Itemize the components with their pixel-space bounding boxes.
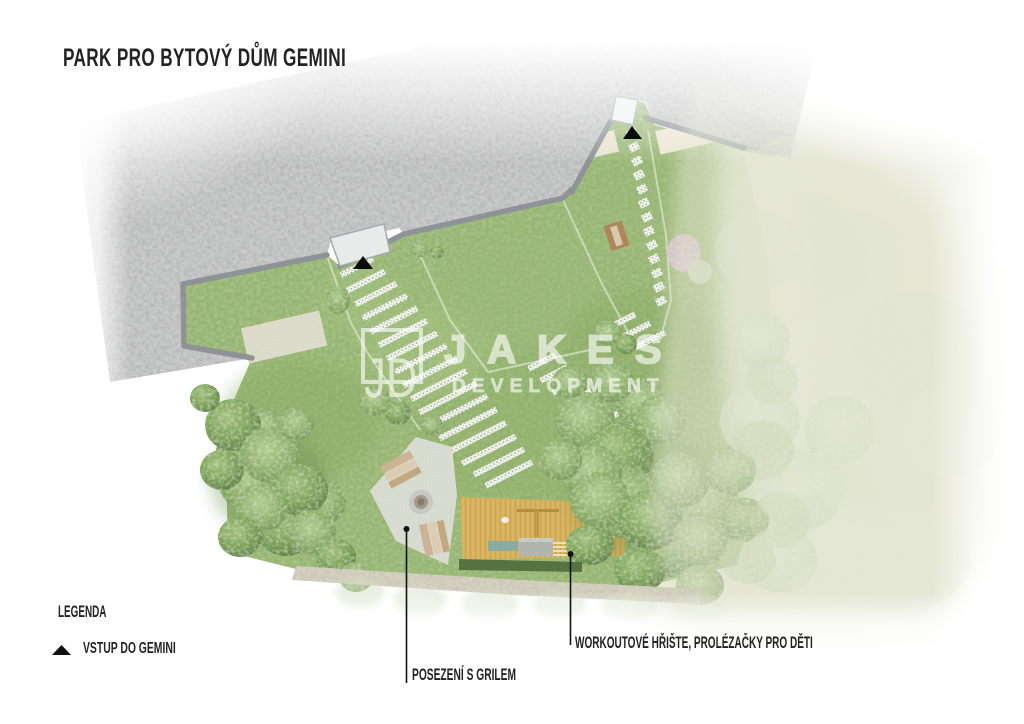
svg-text:JAKES: JAKES [444, 328, 682, 372]
svg-text:DEVELOPMENT: DEVELOPMENT [452, 376, 665, 397]
svg-text:JD: JD [364, 347, 417, 409]
